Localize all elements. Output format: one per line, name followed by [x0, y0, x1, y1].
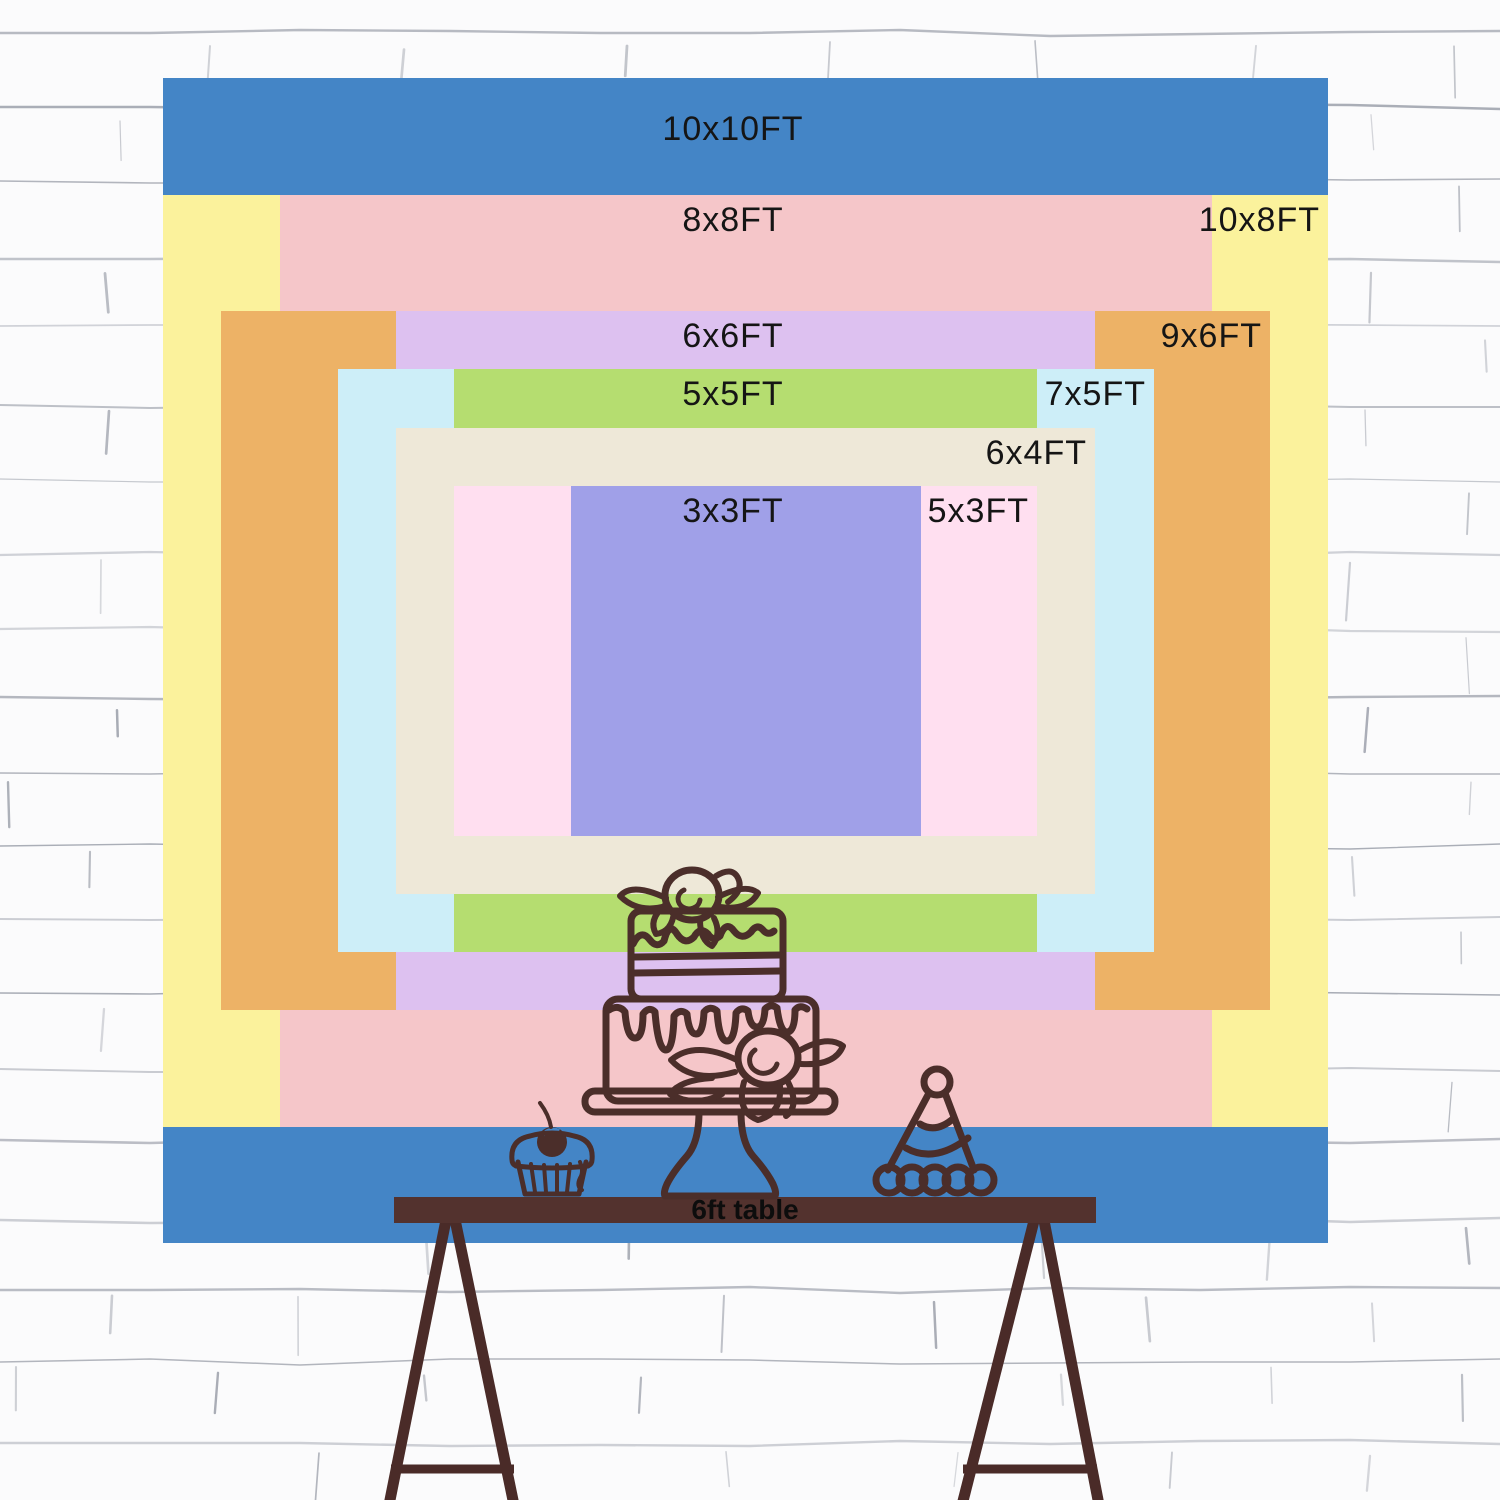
party-hat-drawing — [876, 1069, 994, 1193]
dessert-line-drawings — [0, 0, 1500, 1500]
backdrop-size-chart-scene: 10x10FT10x8FT8x8FT9x6FT6x6FT7x5FT5x5FT6x… — [0, 0, 1500, 1500]
tiered-cake-drawing — [585, 870, 843, 1196]
cupcake-drawing — [512, 1103, 592, 1194]
